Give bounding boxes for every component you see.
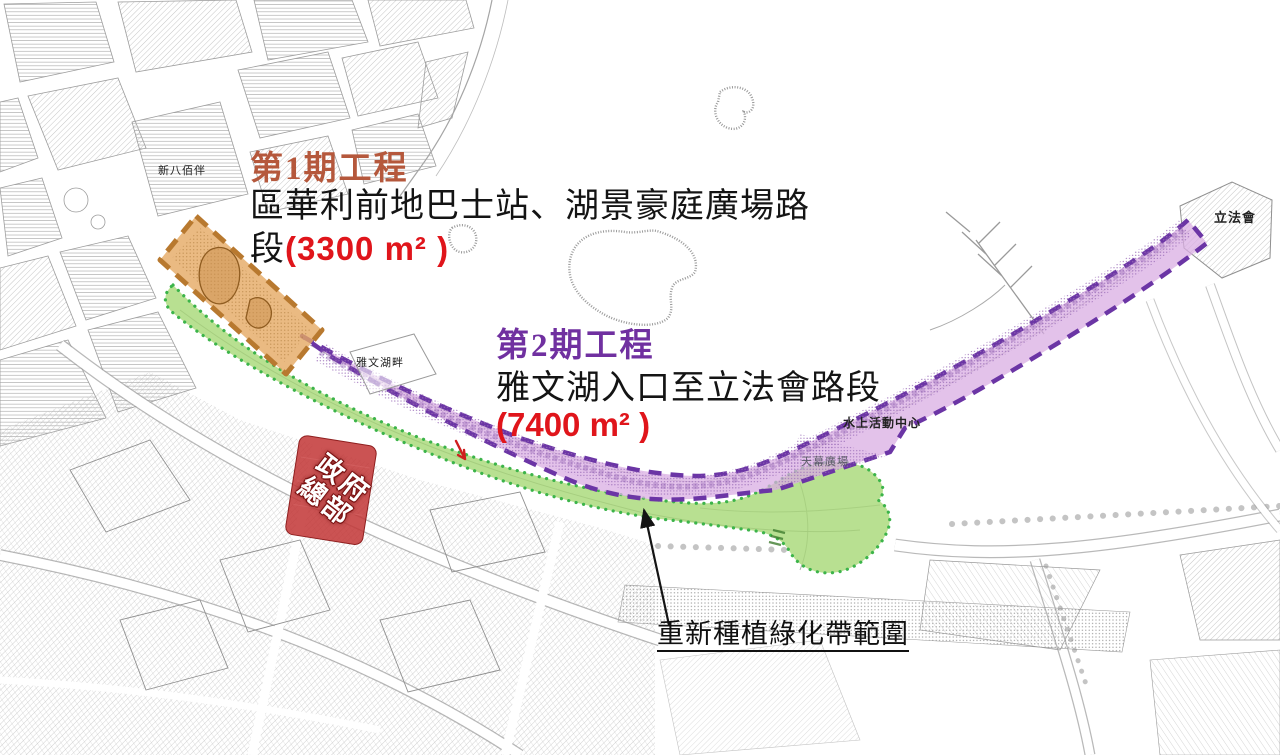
- government-hq-block: [285, 435, 378, 546]
- pond: [91, 215, 105, 229]
- pond: [64, 188, 88, 212]
- map-base: [0, 0, 1280, 755]
- slide-canvas: 第1期工程 區華利前地巴士站、湖景豪庭廣場路 段(3300 m² ) 第2期工程…: [0, 0, 1280, 755]
